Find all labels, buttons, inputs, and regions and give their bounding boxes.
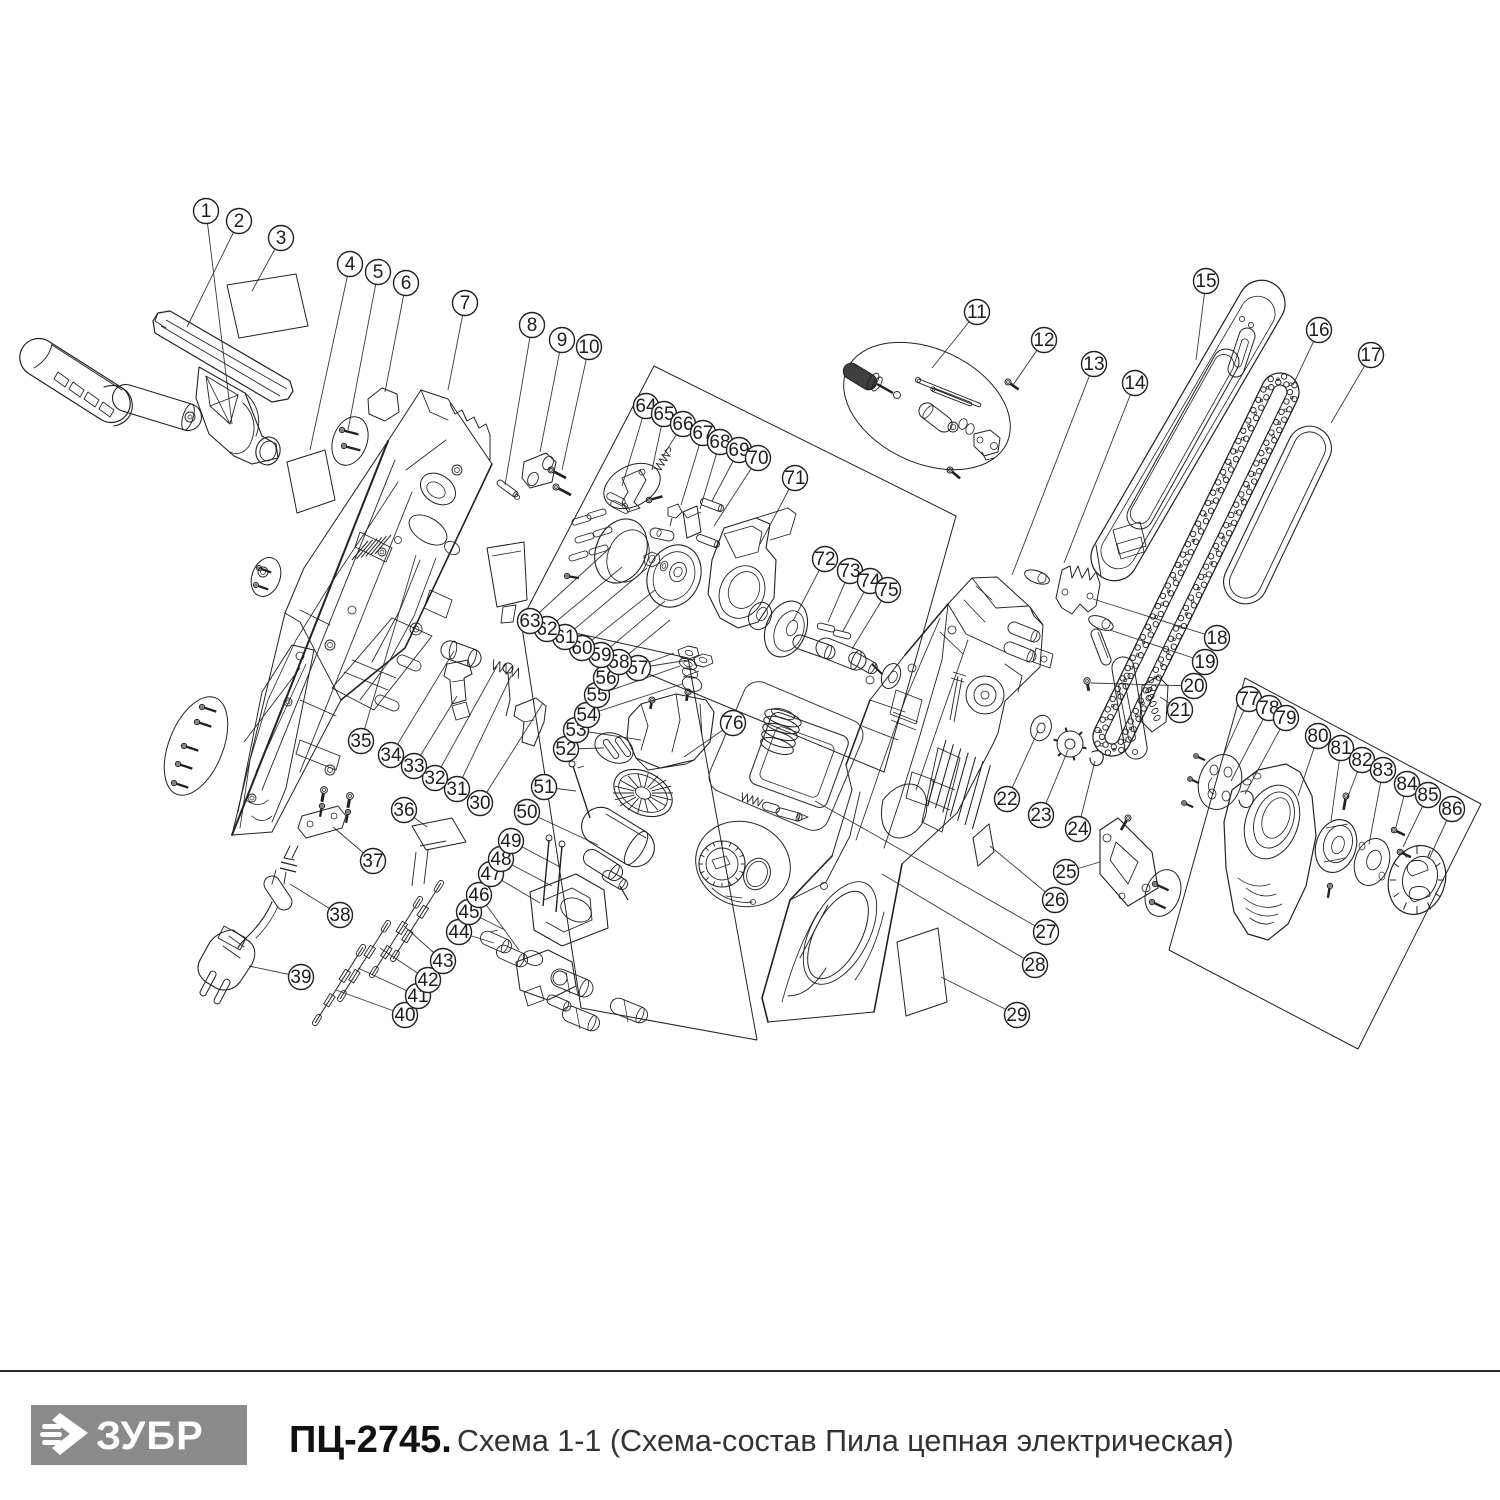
svg-text:15: 15: [1195, 271, 1216, 292]
svg-text:76: 76: [722, 713, 743, 734]
svg-text:4: 4: [345, 254, 356, 275]
svg-text:10: 10: [578, 337, 599, 358]
svg-text:70: 70: [747, 448, 768, 469]
svg-text:23: 23: [1030, 805, 1051, 826]
svg-text:51: 51: [533, 777, 554, 798]
svg-text:79: 79: [1275, 708, 1296, 729]
svg-text:84: 84: [1396, 774, 1418, 795]
svg-text:6: 6: [401, 273, 412, 294]
svg-text:50: 50: [516, 802, 537, 823]
svg-text:32: 32: [424, 768, 445, 789]
svg-text:21: 21: [1169, 700, 1190, 721]
svg-text:18: 18: [1206, 628, 1227, 649]
svg-text:24: 24: [1067, 819, 1089, 840]
svg-text:8: 8: [527, 315, 538, 336]
svg-text:20: 20: [1183, 676, 1204, 697]
svg-text:11: 11: [967, 302, 987, 323]
svg-text:25: 25: [1055, 862, 1076, 883]
svg-text:14: 14: [1124, 373, 1146, 394]
svg-text:85: 85: [1417, 785, 1438, 806]
svg-text:80: 80: [1307, 726, 1328, 747]
svg-text:39: 39: [290, 967, 311, 988]
svg-text:26: 26: [1044, 890, 1065, 911]
svg-text:ЗУБР: ЗУБР: [96, 1414, 204, 1458]
svg-text:5: 5: [373, 262, 384, 283]
svg-text:42: 42: [417, 970, 438, 991]
svg-text:63: 63: [519, 611, 540, 632]
svg-text:28: 28: [1024, 955, 1045, 976]
svg-text:34: 34: [380, 745, 402, 766]
svg-text:37: 37: [362, 851, 383, 872]
svg-text:3: 3: [276, 228, 287, 249]
svg-text:9: 9: [557, 330, 568, 351]
svg-text:81: 81: [1330, 738, 1351, 759]
svg-text:29: 29: [1006, 1005, 1027, 1026]
svg-text:27: 27: [1035, 922, 1056, 943]
svg-text:17: 17: [1360, 345, 1381, 366]
svg-text:36: 36: [393, 800, 414, 821]
svg-text:72: 72: [814, 549, 835, 570]
svg-text:22: 22: [996, 789, 1017, 810]
svg-text:16: 16: [1308, 320, 1329, 341]
svg-text:ПЦ-2745.: ПЦ-2745.: [289, 1419, 452, 1461]
svg-text:12: 12: [1033, 330, 1054, 351]
svg-text:82: 82: [1351, 750, 1372, 771]
svg-text:35: 35: [350, 731, 371, 752]
svg-text:40: 40: [394, 1005, 415, 1026]
svg-text:46: 46: [468, 885, 489, 906]
svg-text:Схема 1-1 (Схема-состав Пила ц: Схема 1-1 (Схема-состав Пила цепная элек…: [457, 1424, 1234, 1458]
svg-text:43: 43: [432, 951, 453, 972]
svg-text:49: 49: [500, 831, 521, 852]
svg-text:75: 75: [877, 580, 898, 601]
svg-text:54: 54: [576, 705, 598, 726]
svg-text:38: 38: [329, 905, 350, 926]
svg-text:86: 86: [1441, 799, 1462, 820]
svg-text:7: 7: [460, 293, 471, 314]
svg-text:30: 30: [469, 793, 490, 814]
svg-text:44: 44: [448, 922, 470, 943]
svg-text:19: 19: [1194, 652, 1215, 673]
svg-text:31: 31: [446, 779, 467, 800]
svg-text:83: 83: [1372, 760, 1393, 781]
svg-text:33: 33: [403, 756, 424, 777]
svg-text:1: 1: [201, 201, 212, 222]
svg-text:71: 71: [784, 468, 805, 489]
svg-text:2: 2: [234, 211, 245, 232]
svg-text:13: 13: [1083, 354, 1104, 375]
